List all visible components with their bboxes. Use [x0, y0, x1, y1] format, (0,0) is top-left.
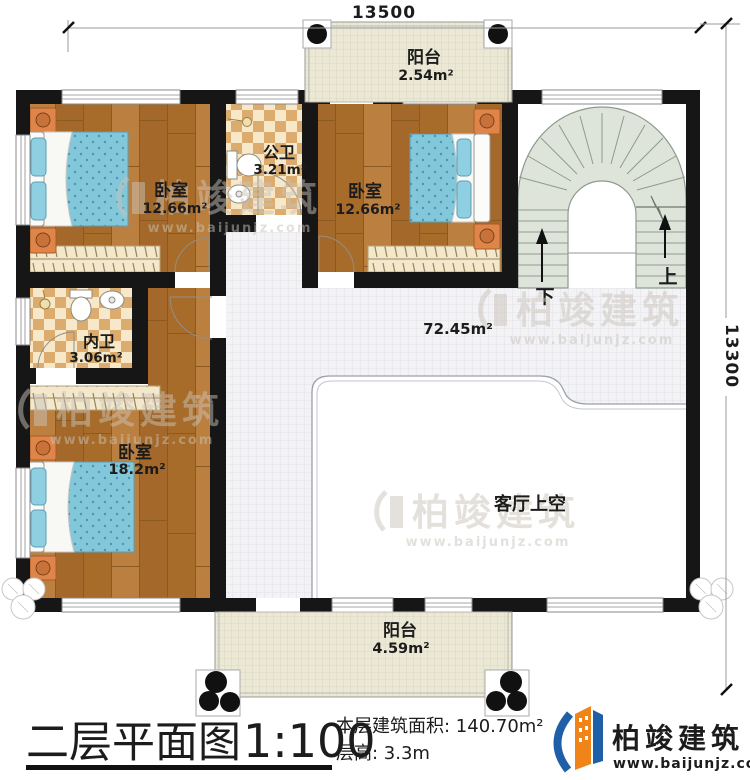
- pillow: [457, 181, 471, 218]
- column: [307, 24, 327, 44]
- dimension-height-label: 13300: [721, 324, 741, 388]
- window: [62, 598, 180, 612]
- balcony-bottom-name: 阳台: [383, 620, 417, 641]
- void-boundary: [312, 376, 686, 598]
- svg-text:www.baijunjz.com: www.baijunjz.com: [510, 333, 675, 348]
- watermark-logo-icon: [34, 394, 47, 426]
- brand-logo-icon: [557, 706, 603, 770]
- bed: [410, 134, 490, 222]
- title-underline: [26, 765, 332, 770]
- window: [332, 598, 393, 612]
- floor-plan-drawing: 下 上: [0, 0, 750, 780]
- shower-fitting-icon: [243, 118, 252, 127]
- pillow: [31, 510, 46, 547]
- bed: [28, 132, 128, 226]
- watermark-logo-icon: [377, 492, 386, 530]
- pillow: [31, 138, 46, 176]
- bath-ensuite-area: 3.06m²: [69, 350, 122, 366]
- window: [62, 90, 180, 104]
- bedroom-right-area: 12.66m²: [335, 202, 400, 218]
- hall-area: 72.45m²: [423, 320, 493, 338]
- pillow: [31, 182, 46, 220]
- toilet: [71, 297, 91, 321]
- toilet-tank: [227, 151, 237, 179]
- window: [542, 90, 662, 104]
- watermark-logo-icon: [494, 294, 507, 326]
- window: [547, 598, 663, 612]
- pillow: [31, 468, 46, 505]
- title-block: 二层平面图 1:100 本层建筑面积: 140.70m² 层高: 3.3m: [26, 714, 544, 770]
- bath-public-area: 3.21m²: [253, 162, 306, 178]
- bedroom-bottom-area: 18.2m²: [108, 462, 165, 478]
- balcony-top-area: 2.54m²: [398, 68, 453, 84]
- svg-text:柏竣建筑: 柏竣建筑: [516, 289, 684, 332]
- balcony-top-name: 阳台: [407, 47, 441, 68]
- window: [236, 90, 298, 104]
- svg-text:www.baijunjz.com: www.baijunjz.com: [406, 535, 571, 550]
- column-cluster: [485, 670, 529, 716]
- bedroom-left-area: 12.66m²: [142, 201, 207, 217]
- brand-logo: 柏竣建筑 www.baijunjz.com: [557, 706, 750, 772]
- floor-plan-page: 下 上: [0, 0, 750, 780]
- plan-title: 二层平面图: [26, 718, 241, 768]
- brand-url: www.baijunjz.com: [613, 756, 750, 772]
- window: [16, 298, 30, 345]
- window: [425, 598, 472, 612]
- corner-plant: [690, 578, 733, 619]
- window: [16, 468, 30, 558]
- floor-area-line: 本层建筑面积: 140.70m²: [336, 716, 544, 737]
- suite-entry-floor: [148, 288, 212, 386]
- bedroom-bottom-name: 卧室: [118, 442, 152, 463]
- bath-ensuite-name: 内卫: [83, 332, 115, 351]
- stair-up-label: 上: [658, 266, 677, 288]
- brand-name: 柏竣建筑: [612, 722, 744, 755]
- bedroom-right-name: 卧室: [348, 181, 382, 202]
- svg-text:www.baijunjz.com: www.baijunjz.com: [148, 221, 313, 236]
- dimension-width-label: 13500: [352, 3, 416, 23]
- floor-height-line: 层高: 3.3m: [336, 743, 430, 764]
- column: [488, 24, 508, 44]
- svg-text:柏竣建筑: 柏竣建筑: [56, 389, 224, 432]
- void-name: 客厅上空: [494, 493, 566, 515]
- pillow: [457, 139, 471, 176]
- column-cluster: [196, 670, 240, 716]
- watermark-logo-icon: [390, 496, 403, 528]
- balcony-bottom: [196, 612, 529, 716]
- staircase: 下 上: [518, 107, 686, 308]
- bedroom-left-name: 卧室: [154, 180, 188, 201]
- window: [16, 135, 30, 225]
- bath-public-name: 公卫: [263, 143, 295, 162]
- shower-fitting-icon: [40, 299, 50, 309]
- balcony-bottom-area: 4.59m²: [372, 641, 429, 657]
